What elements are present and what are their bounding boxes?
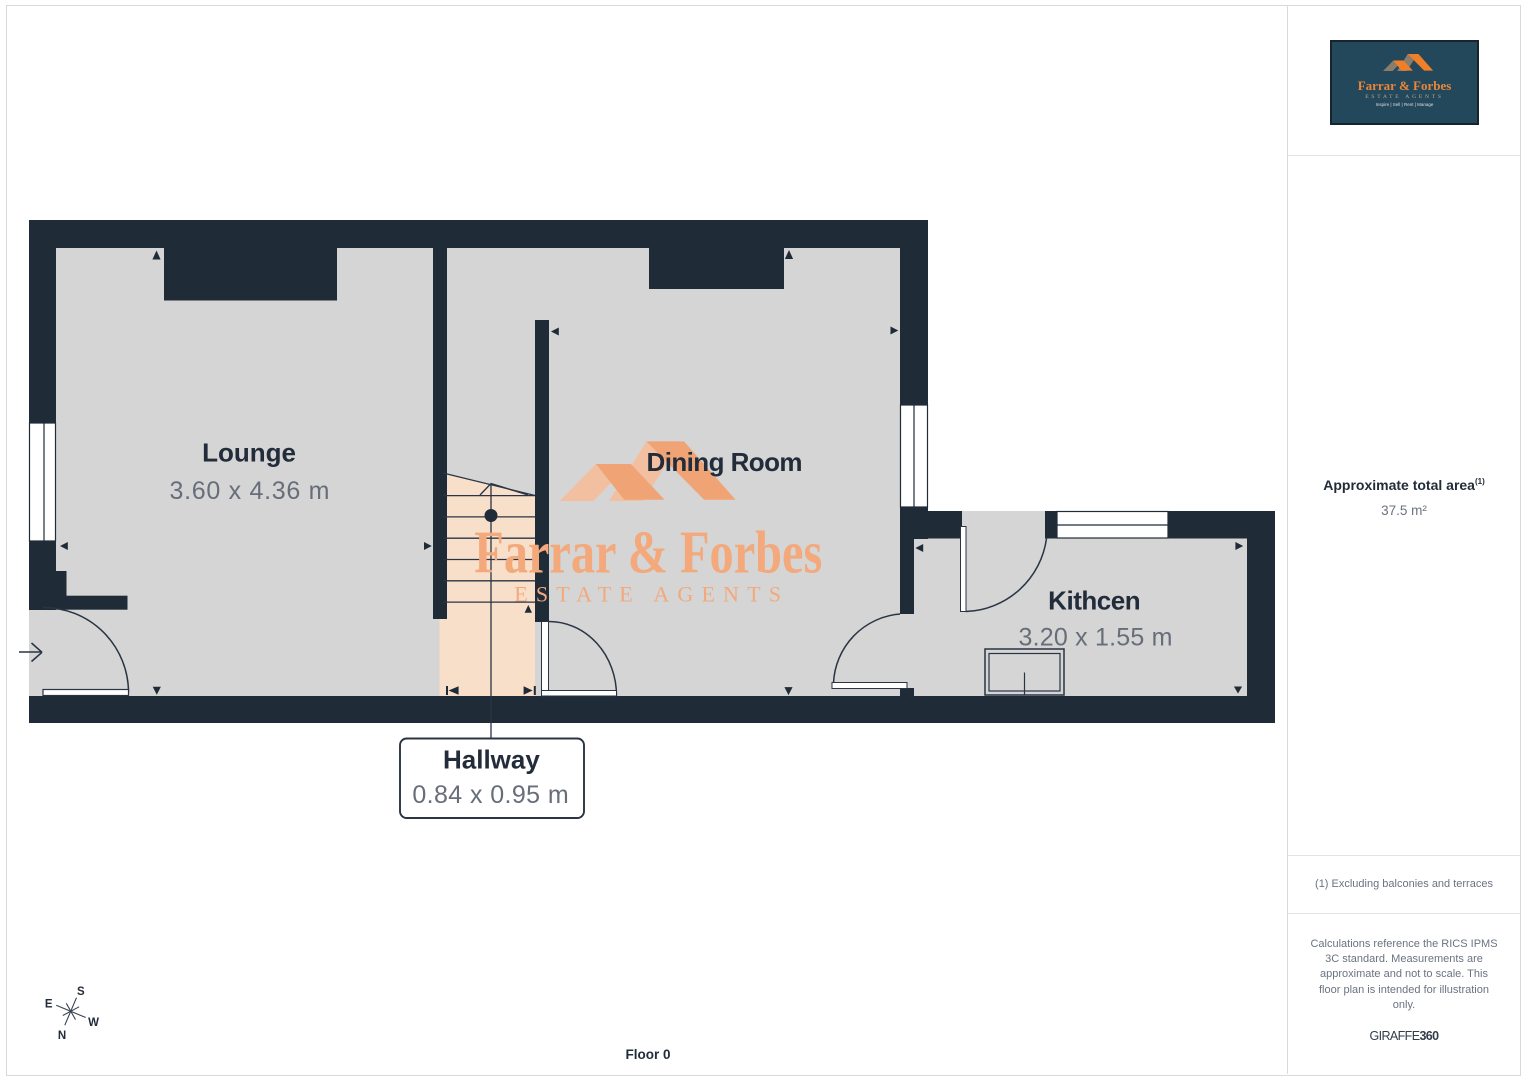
svg-text:S: S	[77, 986, 85, 998]
svg-text:N: N	[58, 1030, 66, 1042]
svg-text:Kithcen: Kithcen	[1048, 586, 1141, 616]
svg-text:W: W	[88, 1017, 99, 1029]
svg-text:3.60 x 4.36 m: 3.60 x 4.36 m	[170, 477, 330, 505]
svg-text:3.20 x 1.55 m: 3.20 x 1.55 m	[1019, 624, 1173, 652]
svg-text:Farrar & Forbes: Farrar & Forbes	[474, 520, 822, 586]
svg-text:0.84 x 0.95 m: 0.84 x 0.95 m	[412, 781, 568, 809]
svg-text:E: E	[45, 999, 53, 1011]
svg-text:Lounge: Lounge	[202, 438, 296, 468]
svg-text:Dining Room: Dining Room	[647, 447, 803, 477]
svg-text:Hallway: Hallway	[443, 744, 540, 774]
